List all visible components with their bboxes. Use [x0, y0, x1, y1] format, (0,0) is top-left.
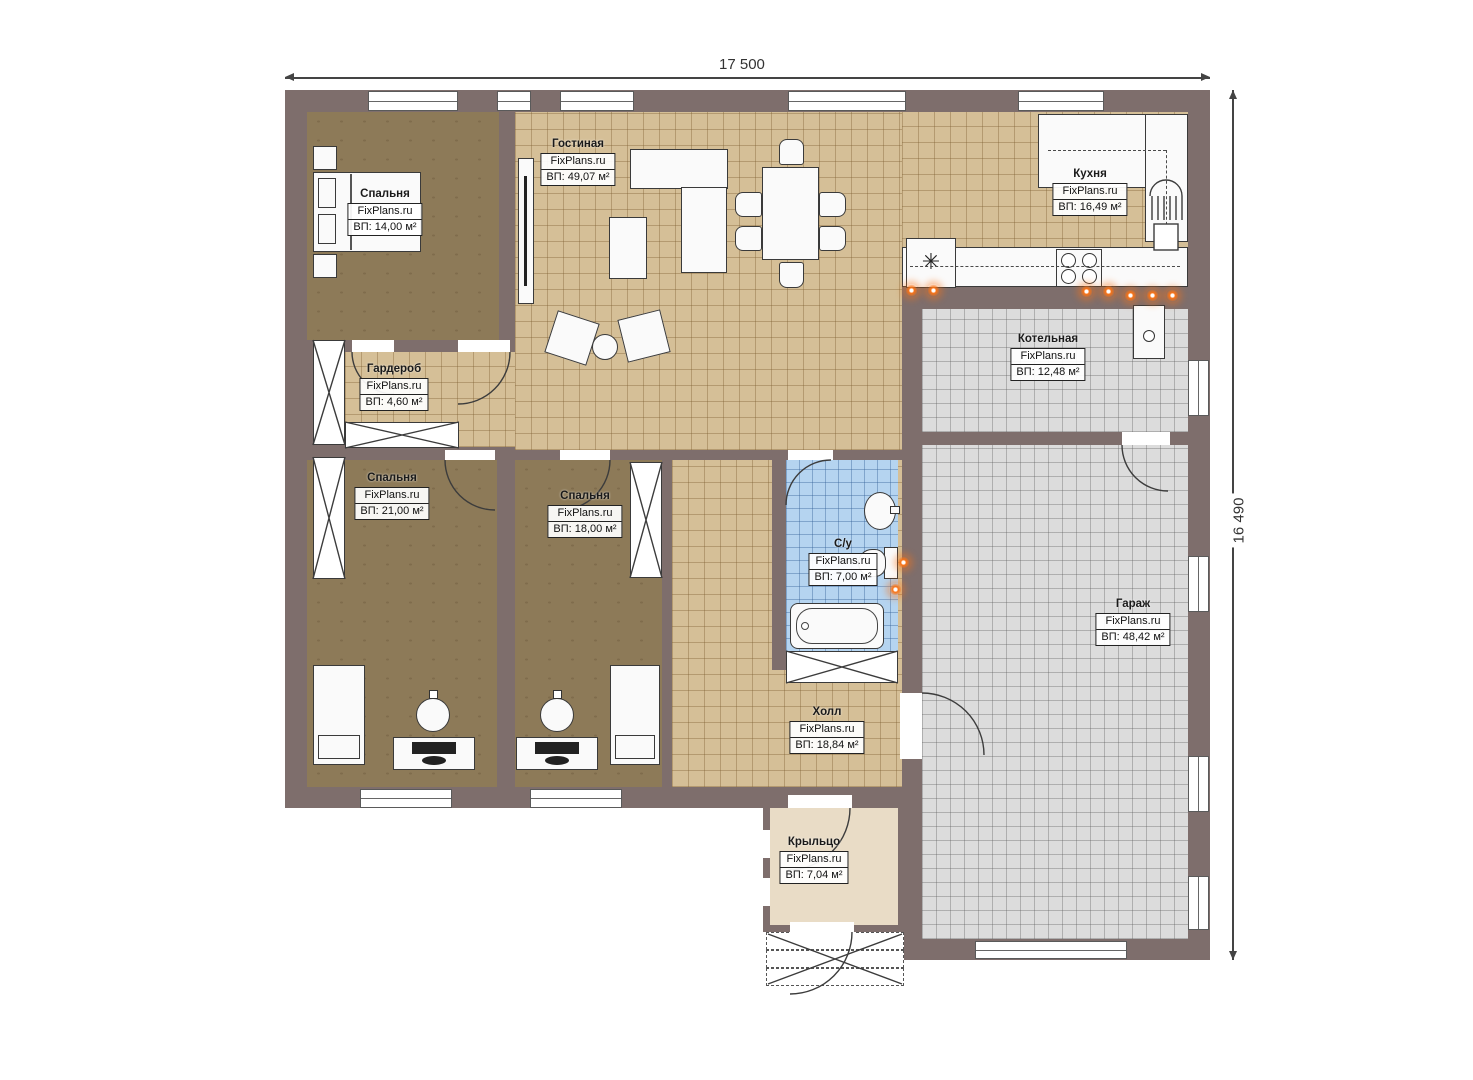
porch-step-3 [766, 968, 904, 986]
closet-icon [630, 462, 662, 578]
room-label-bedroom-3: Спальня FixPlans.ru ВП: 18,00 м² [547, 490, 622, 538]
desk-chair-icon [416, 698, 450, 732]
monitor-icon [535, 742, 579, 754]
room-name: Кухня [1052, 168, 1127, 181]
counter-dash-line [1048, 150, 1166, 151]
window-top-4 [788, 91, 906, 111]
room-name: Гараж [1095, 598, 1170, 611]
window-right-2 [1188, 556, 1209, 612]
room-area: ВП: 12,48 м² [1011, 365, 1084, 380]
door-opening-boiler-garage [1122, 432, 1170, 445]
nightstand-icon [313, 254, 337, 278]
chair-icon [819, 192, 846, 217]
room-name: Котельная [1010, 333, 1085, 346]
room-brand: FixPlans.ru [541, 154, 614, 170]
window-top-2 [497, 91, 531, 111]
room-info-box: FixPlans.ru ВП: 12,48 м² [1010, 348, 1085, 380]
room-brand: FixPlans.ru [360, 379, 427, 395]
dimension-arrow-left [285, 73, 294, 81]
room-name: Гардероб [359, 363, 428, 376]
room-area: ВП: 14,00 м² [348, 220, 421, 235]
monitor-stand-icon [545, 756, 569, 765]
door-opening-hall-porch [788, 795, 852, 808]
fridge-icon: ✳ [906, 238, 956, 288]
chair-knob [429, 690, 438, 699]
monitor-icon [412, 742, 456, 754]
pillow-icon [318, 178, 336, 208]
room-brand: FixPlans.ru [809, 554, 876, 570]
chair-icon [819, 226, 846, 251]
stove-burner [1082, 269, 1097, 284]
room-name: Гостиная [540, 138, 615, 151]
radiator-icon [927, 284, 940, 297]
boiler-dial [1143, 330, 1155, 342]
toilet-tank-icon [884, 547, 898, 579]
stove-icon [1056, 249, 1102, 287]
door-opening-bedroom-2 [445, 450, 495, 460]
room-label-kitchen: Кухня FixPlans.ru ВП: 16,49 м² [1052, 168, 1127, 216]
tv-icon [524, 176, 527, 286]
door-opening-bedroom-3 [560, 450, 610, 460]
window-bottom-1 [360, 789, 452, 808]
closet-icon [313, 457, 345, 579]
room-name: Холл [789, 706, 864, 719]
room-area: ВП: 21,00 м² [355, 504, 428, 519]
room-area: ВП: 49,07 м² [541, 170, 614, 185]
dining-table-icon [762, 167, 819, 260]
porch-step-2 [766, 950, 904, 968]
counter-dash-line [910, 266, 1180, 267]
chair-icon [735, 192, 762, 217]
room-info-box: FixPlans.ru ВП: 49,07 м² [540, 153, 615, 185]
radiator-icon [1080, 285, 1093, 298]
floor-plan-canvas: 17 500 16 490 [0, 0, 1473, 1080]
radiator-icon [889, 583, 902, 596]
bathtub-drain [801, 622, 809, 630]
room-info-box: FixPlans.ru ВП: 21,00 м² [354, 487, 429, 519]
door-opening-wardrobe [352, 340, 394, 352]
coffee-table-icon [609, 217, 647, 279]
room-label-bathroom: С/у FixPlans.ru ВП: 7,00 м² [808, 538, 877, 586]
room-area: ВП: 18,84 м² [790, 738, 863, 753]
window-top-1 [368, 91, 458, 111]
wall-bathroom-left [772, 450, 786, 670]
dimension-arrow-up [1229, 90, 1237, 99]
room-label-bedroom-2: Спальня FixPlans.ru ВП: 21,00 м² [354, 472, 429, 520]
porch-window-left-2 [760, 878, 770, 906]
room-brand: FixPlans.ru [1096, 614, 1169, 630]
chair-knob [553, 690, 562, 699]
window-right-3 [1188, 756, 1209, 812]
room-info-box: FixPlans.ru ВП: 4,60 м² [359, 378, 428, 410]
room-area: ВП: 7,04 м² [780, 868, 847, 883]
pillow-icon [318, 214, 336, 244]
room-label-wardrobe: Гардероб FixPlans.ru ВП: 4,60 м² [359, 363, 428, 411]
floor-garage [922, 445, 1188, 939]
chair-icon [779, 262, 804, 288]
garage-gate-opening [975, 941, 1127, 959]
room-info-box: FixPlans.ru ВП: 7,00 м² [808, 553, 877, 585]
dimension-width-label: 17 500 [715, 56, 769, 73]
counter-dash-line [1166, 150, 1167, 230]
porch-door-opening [790, 922, 854, 934]
closet-icon [345, 422, 459, 448]
room-label-porch: Крыльцо FixPlans.ru ВП: 7,04 м² [779, 836, 848, 884]
dimension-arrow-down [1229, 951, 1237, 960]
room-label-garage: Гараж FixPlans.ru ВП: 48,42 м² [1095, 598, 1170, 646]
room-brand: FixPlans.ru [355, 488, 428, 504]
room-label-boiler-room: Котельная FixPlans.ru ВП: 12,48 м² [1010, 333, 1085, 381]
radiator-icon [1166, 289, 1179, 302]
chair-icon [779, 139, 804, 165]
room-label-bedroom-1: Спальня FixPlans.ru ВП: 14,00 м² [347, 188, 422, 236]
room-label-hall: Холл FixPlans.ru ВП: 18,84 м² [789, 706, 864, 754]
radiator-icon [1146, 289, 1159, 302]
round-table-icon [592, 334, 618, 360]
dimension-height-label: 16 490 [1230, 494, 1247, 548]
room-label-living-room: Гостиная FixPlans.ru ВП: 49,07 м² [540, 138, 615, 186]
nightstand-icon [313, 146, 337, 170]
room-brand: FixPlans.ru [790, 722, 863, 738]
cabinet-icon [786, 651, 898, 683]
room-name: С/у [808, 538, 877, 551]
room-area: ВП: 18,00 м² [548, 522, 621, 537]
room-info-box: FixPlans.ru ВП: 7,04 м² [779, 851, 848, 883]
closet-icon [313, 340, 345, 445]
porch-step-1 [766, 932, 904, 950]
room-area: ВП: 48,42 м² [1096, 630, 1169, 645]
room-brand: FixPlans.ru [1011, 349, 1084, 365]
sofa-icon [630, 149, 728, 189]
room-name: Спальня [347, 188, 422, 201]
window-bottom-2 [530, 789, 622, 808]
window-top-3 [560, 91, 634, 111]
room-name: Крыльцо [779, 836, 848, 849]
room-info-box: FixPlans.ru ВП: 18,84 м² [789, 721, 864, 753]
room-name: Спальня [547, 490, 622, 503]
room-info-box: FixPlans.ru ВП: 16,49 м² [1052, 183, 1127, 215]
room-brand: FixPlans.ru [548, 506, 621, 522]
pillow-icon [615, 735, 655, 759]
room-area: ВП: 16,49 м² [1053, 200, 1126, 215]
radiator-icon [897, 556, 910, 569]
monitor-stand-icon [422, 756, 446, 765]
porch-window-left-1 [760, 830, 770, 858]
window-top-5 [1018, 91, 1104, 111]
radiator-icon [1102, 285, 1115, 298]
door-opening-garage [900, 693, 922, 759]
stove-burner [1061, 269, 1076, 284]
window-right-1 [1188, 360, 1209, 416]
room-brand: FixPlans.ru [780, 852, 847, 868]
desk-chair-icon [540, 698, 574, 732]
room-area: ВП: 7,00 м² [809, 570, 876, 585]
window-right-4 [1188, 876, 1209, 930]
pillow-icon [318, 735, 360, 759]
door-opening-bathroom [788, 450, 833, 460]
dimension-arrow-right [1201, 73, 1210, 81]
room-info-box: FixPlans.ru ВП: 14,00 м² [347, 203, 422, 235]
sofa-icon [681, 187, 727, 273]
radiator-icon [1124, 289, 1137, 302]
room-name: Спальня [354, 472, 429, 485]
room-area: ВП: 4,60 м² [360, 395, 427, 410]
room-brand: FixPlans.ru [1053, 184, 1126, 200]
room-info-box: FixPlans.ru ВП: 18,00 м² [547, 505, 622, 537]
dimension-line-top [285, 77, 1210, 79]
radiator-icon [905, 284, 918, 297]
room-brand: FixPlans.ru [348, 204, 421, 220]
room-info-box: FixPlans.ru ВП: 48,42 м² [1095, 613, 1170, 645]
chair-icon [735, 226, 762, 251]
door-opening-bedroom-1 [458, 340, 510, 352]
faucet-icon [890, 506, 900, 514]
